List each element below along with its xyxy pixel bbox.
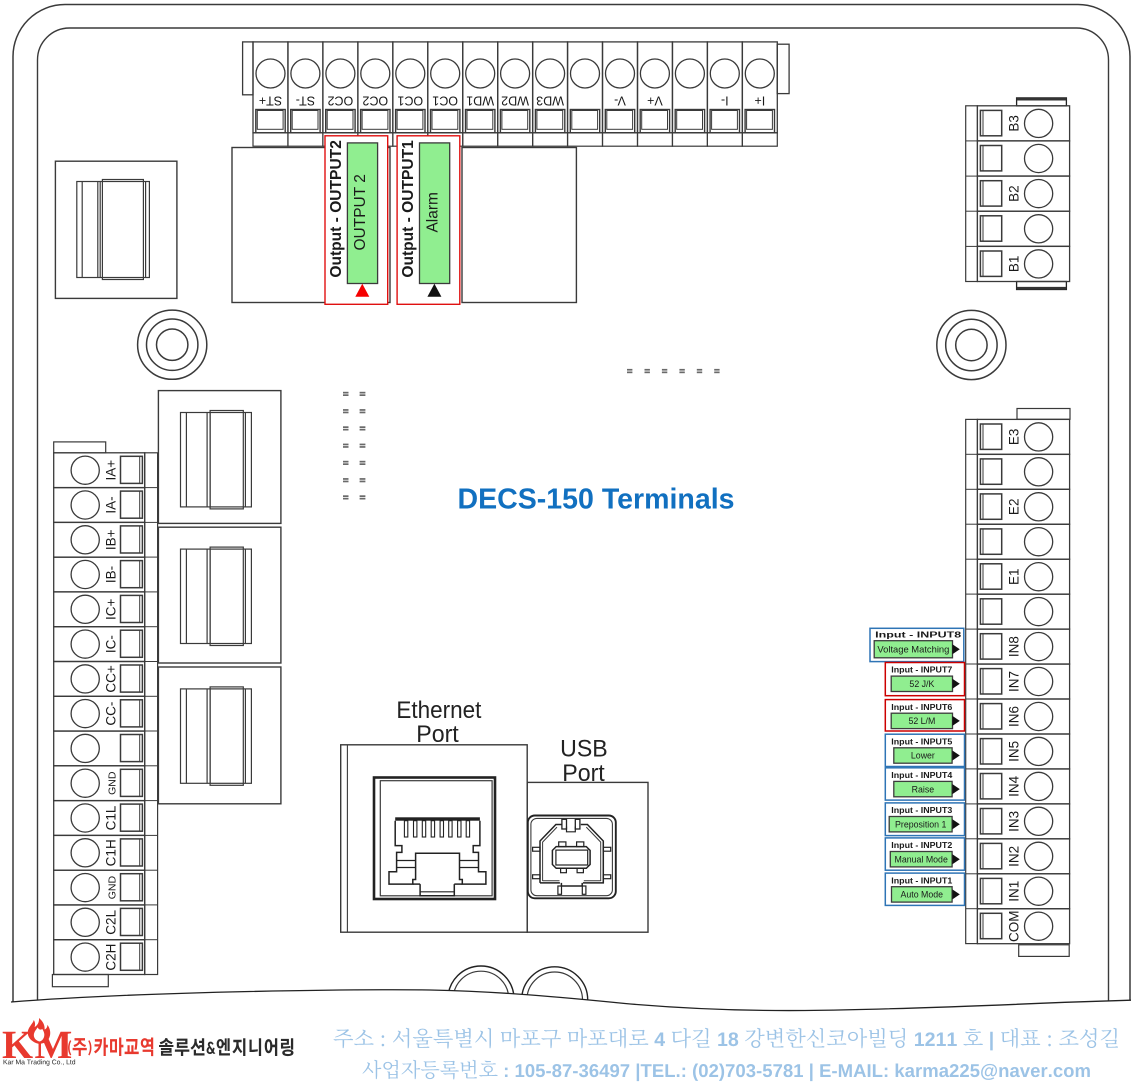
svg-text:IN4: IN4 [1007, 775, 1022, 797]
svg-text:C1H: C1H [104, 839, 119, 866]
svg-text:Input - INPUT6: Input - INPUT6 [891, 702, 952, 712]
svg-text:B2: B2 [1007, 185, 1022, 202]
svg-text:IC-: IC- [104, 635, 119, 653]
svg-text:Lower: Lower [911, 751, 935, 761]
svg-text:CC-: CC- [104, 702, 119, 726]
svg-text:Input - INPUT3: Input - INPUT3 [891, 805, 952, 815]
svg-text:Auto Mode: Auto Mode [901, 890, 944, 900]
svg-text:IN5: IN5 [1007, 741, 1022, 762]
svg-text:OC1: OC1 [397, 94, 423, 108]
svg-text:Port: Port [416, 721, 459, 748]
svg-text:I-: I- [721, 94, 729, 108]
svg-text:IN3: IN3 [1007, 811, 1022, 832]
svg-text:IN6: IN6 [1007, 706, 1022, 727]
svg-text:52 J/K: 52 J/K [909, 679, 934, 689]
svg-text:B1: B1 [1007, 256, 1022, 273]
svg-text:WD1: WD1 [466, 94, 494, 108]
svg-text:V-: V- [614, 94, 626, 108]
svg-text:IB-: IB- [104, 566, 119, 583]
svg-text:COM: COM [1007, 910, 1022, 942]
svg-text:WD2: WD2 [501, 94, 529, 108]
svg-text:IN2: IN2 [1007, 846, 1022, 867]
svg-text:Preposition 1: Preposition 1 [895, 819, 946, 829]
svg-text:Output - OUTPUT1: Output - OUTPUT1 [400, 140, 417, 278]
svg-text:52 L/M: 52 L/M [908, 716, 935, 726]
svg-text:IA+: IA+ [104, 460, 119, 481]
svg-text:E1: E1 [1007, 568, 1022, 585]
svg-text:C2L: C2L [104, 909, 119, 934]
svg-text:Input - INPUT4: Input - INPUT4 [891, 770, 952, 780]
svg-text:WD3: WD3 [536, 94, 564, 108]
svg-text:Raise: Raise [912, 784, 935, 794]
svg-text:V+: V+ [647, 94, 663, 108]
svg-text:IN7: IN7 [1007, 671, 1022, 692]
svg-text:C2H: C2H [104, 944, 119, 971]
svg-text:Output - OUTPUT2: Output - OUTPUT2 [328, 140, 345, 278]
svg-text:C1L: C1L [104, 805, 119, 830]
svg-text:ST-: ST- [296, 94, 315, 108]
svg-text:OUTPUT 2: OUTPUT 2 [352, 174, 369, 250]
svg-text:E2: E2 [1007, 499, 1022, 516]
svg-text:GND: GND [107, 771, 119, 795]
svg-text:Manual Mode: Manual Mode [895, 854, 948, 864]
svg-text:IN1: IN1 [1007, 881, 1022, 902]
svg-text:USB: USB [560, 736, 608, 763]
svg-text:Input - INPUT2: Input - INPUT2 [891, 840, 952, 850]
svg-text:CC+: CC+ [104, 665, 119, 692]
svg-text:ST+: ST+ [259, 94, 282, 108]
svg-text:GND: GND [107, 876, 119, 900]
svg-text:IN8: IN8 [1007, 636, 1022, 657]
svg-text:I+: I+ [754, 94, 765, 108]
svg-text:OC2: OC2 [362, 94, 388, 108]
svg-text:IC+: IC+ [104, 598, 119, 620]
svg-text:IB+: IB+ [104, 529, 119, 550]
svg-text:DECS-150 Terminals: DECS-150 Terminals [458, 483, 735, 515]
svg-text:E3: E3 [1007, 429, 1022, 446]
svg-text:Input - INPUT8: Input - INPUT8 [875, 630, 961, 640]
svg-text:Input - INPUT1: Input - INPUT1 [891, 875, 952, 885]
svg-text:Input - INPUT7: Input - INPUT7 [891, 665, 952, 675]
svg-text:IA-: IA- [104, 496, 119, 513]
svg-text:OC2: OC2 [328, 94, 354, 108]
svg-text:Input - INPUT5: Input - INPUT5 [891, 736, 952, 746]
svg-text:OC1: OC1 [432, 94, 458, 108]
svg-text:Ethernet: Ethernet [396, 697, 481, 724]
svg-text:Alarm: Alarm [424, 192, 441, 232]
svg-text:B3: B3 [1007, 115, 1022, 132]
svg-text:Voltage Matching: Voltage Matching [877, 643, 949, 654]
